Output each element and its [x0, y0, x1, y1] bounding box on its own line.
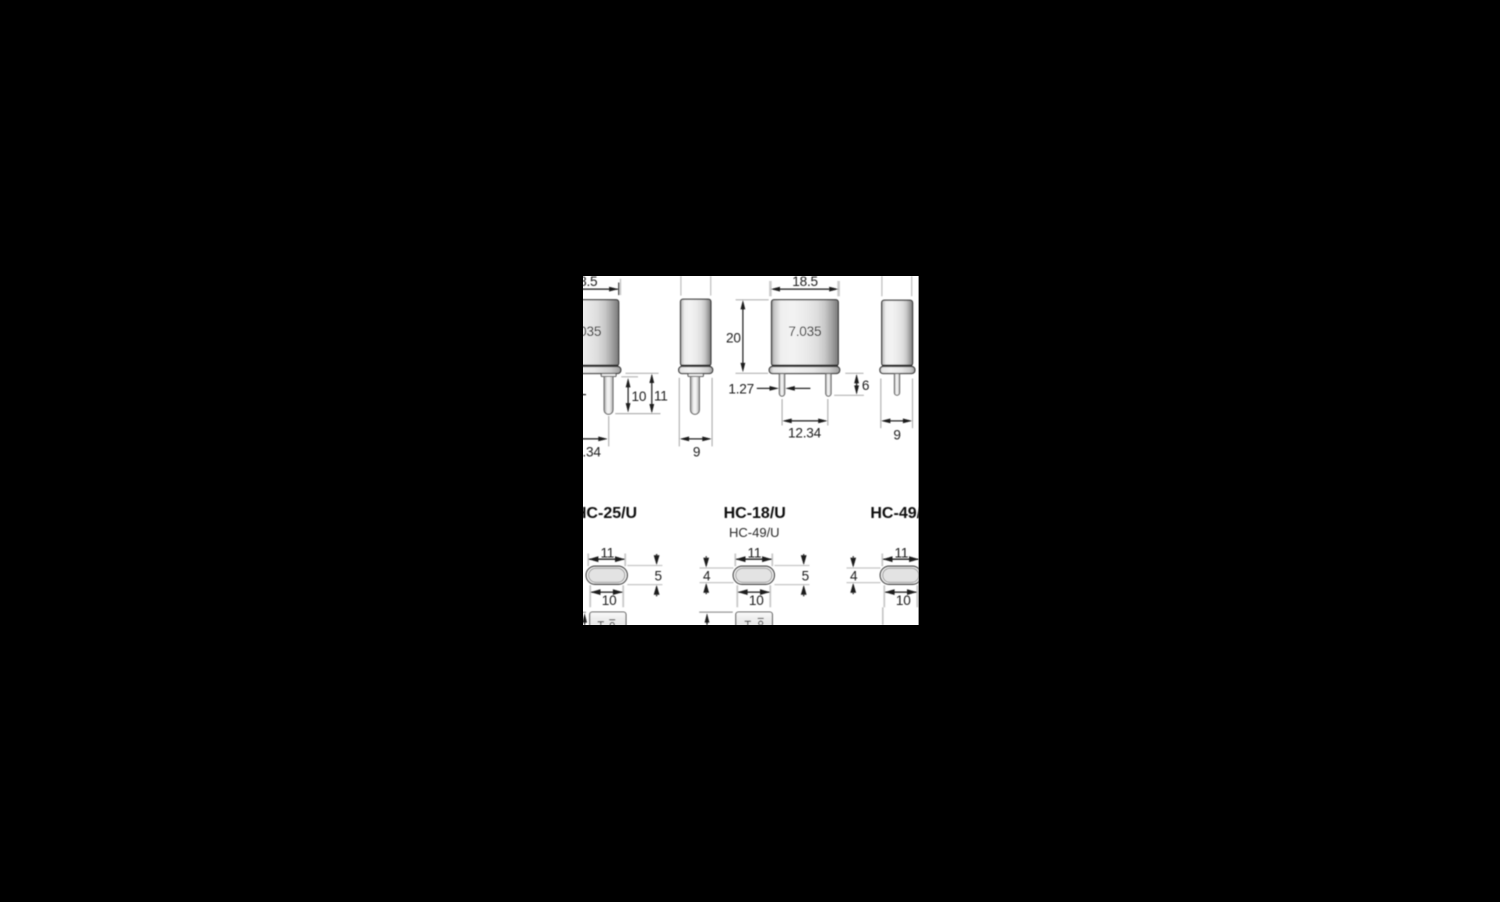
svg-text:11: 11	[748, 545, 762, 560]
svg-text:18.5: 18.5	[792, 274, 818, 289]
svg-text:9: 9	[893, 428, 900, 443]
svg-text:5: 5	[802, 569, 809, 584]
svg-text:4: 4	[850, 569, 858, 584]
svg-text:1.27: 1.27	[728, 382, 754, 397]
svg-text:HC-49/U: HC-49/U	[729, 525, 780, 540]
svg-text:10: 10	[896, 593, 911, 608]
svg-text:7.035: 7.035	[788, 324, 821, 339]
svg-text:20: 20	[726, 330, 741, 345]
svg-text:HC-25/U: HC-25/U	[575, 505, 637, 522]
svg-text:6: 6	[862, 378, 869, 393]
svg-text:10: 10	[602, 593, 617, 608]
svg-text:10: 10	[632, 389, 647, 404]
svg-text:HC-18/U: HC-18/U	[724, 505, 786, 522]
svg-text:11: 11	[600, 545, 614, 560]
svg-text:11: 11	[654, 388, 668, 403]
svg-text:5: 5	[655, 569, 662, 584]
svg-text:4: 4	[703, 569, 711, 584]
svg-text:9: 9	[693, 445, 700, 460]
svg-text:10: 10	[749, 593, 764, 608]
svg-text:11: 11	[895, 545, 909, 560]
svg-text:12.34: 12.34	[788, 426, 822, 441]
